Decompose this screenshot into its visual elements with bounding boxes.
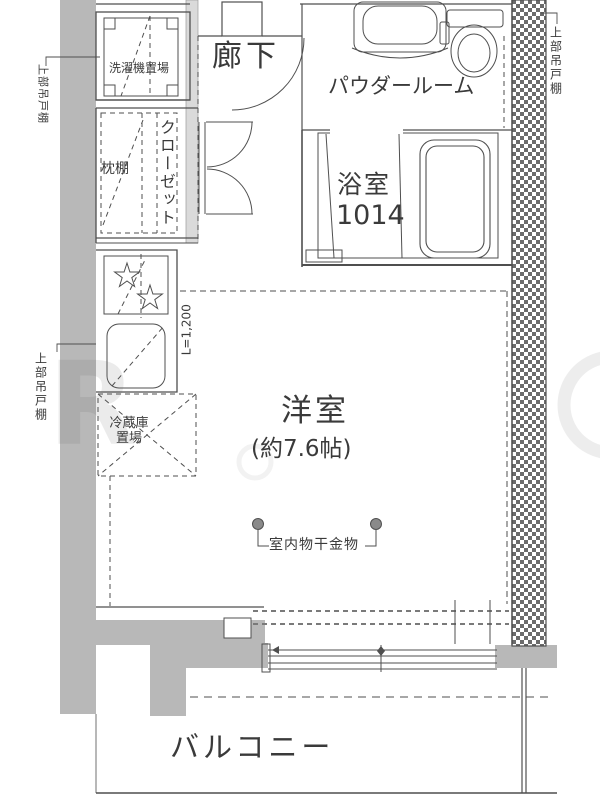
balcony-right-wall-cap xyxy=(495,645,557,668)
watermark-ring xyxy=(564,357,600,453)
fridge-space-label: 冷蔵庫 置場 xyxy=(98,417,160,446)
bathroom-area xyxy=(302,130,512,267)
floorplan: R 廊下 パウダールーム 浴室 1014 クローゼット 枕棚 洗濯機置場 上部吊… xyxy=(0,0,600,800)
bathtub-icon xyxy=(420,140,490,258)
watermark-letter: R xyxy=(48,338,137,472)
upper-cabinet-label-left: 上部吊戸棚 xyxy=(33,352,46,438)
entrance-recess xyxy=(222,2,262,36)
kitchen-length-label: L=1,200 xyxy=(180,290,193,370)
stove-burners-icon xyxy=(115,263,163,309)
upper-cabinet-label-right: 上部吊戸棚 xyxy=(548,26,561,116)
washer-space-label: 洗濯機置場 xyxy=(109,62,169,75)
balcony-label: バルコニー xyxy=(170,731,334,763)
powder-room-label: パウダールーム xyxy=(328,75,474,99)
wall-corridor-strip xyxy=(186,0,198,243)
bath-step xyxy=(306,250,342,262)
wall-step xyxy=(183,643,268,668)
bath-door-line xyxy=(326,134,334,258)
western-room-size-label: (約7.6帖) xyxy=(251,437,352,463)
toilet-icon xyxy=(440,10,503,77)
balcony-left-wall xyxy=(150,620,186,716)
corridor-label: 廊下 xyxy=(212,40,280,74)
upper-cabinet-label-top-left: 上部吊戸棚 xyxy=(36,64,48,156)
bathroom-label: 浴室 xyxy=(337,171,391,199)
pillow-shelf-label: 枕棚 xyxy=(101,162,129,178)
washer-area xyxy=(96,12,190,100)
outer-wall-hatched xyxy=(512,0,546,646)
washbasin-icon xyxy=(352,2,448,58)
pipe-space xyxy=(224,618,251,638)
closet-doors-icon xyxy=(199,122,253,214)
bathroom-size-label: 1014 xyxy=(336,201,405,231)
closet-label: クローゼット xyxy=(157,119,175,229)
western-room-label: 洋室 xyxy=(281,394,349,429)
washer-pan-icon xyxy=(104,18,178,96)
laundry-hardware-label: 室内物干金物 xyxy=(269,538,359,554)
